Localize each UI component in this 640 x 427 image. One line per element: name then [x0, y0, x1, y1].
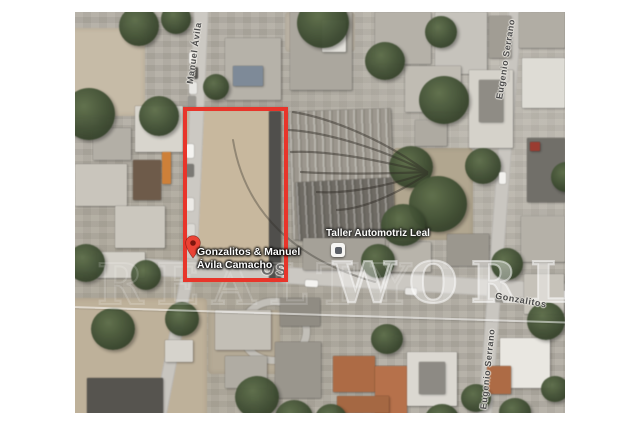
satellite-map[interactable]: REALTY WORLD Manuel Ávila Eugenio Serran… [75, 12, 565, 413]
pin-address-line1: Gonzalitos & Manuel [197, 246, 307, 259]
page-frame: REALTY WORLD Manuel Ávila Eugenio Serran… [0, 0, 640, 427]
pin-address-label: Gonzalitos & Manuel Ávila Camacho [197, 246, 307, 272]
auto-repair-poi-icon[interactable] [331, 243, 345, 257]
pin-address-line2: Ávila Camacho [197, 259, 307, 272]
poi-label-taller-automotriz: Taller Automotriz Leal [303, 228, 453, 239]
